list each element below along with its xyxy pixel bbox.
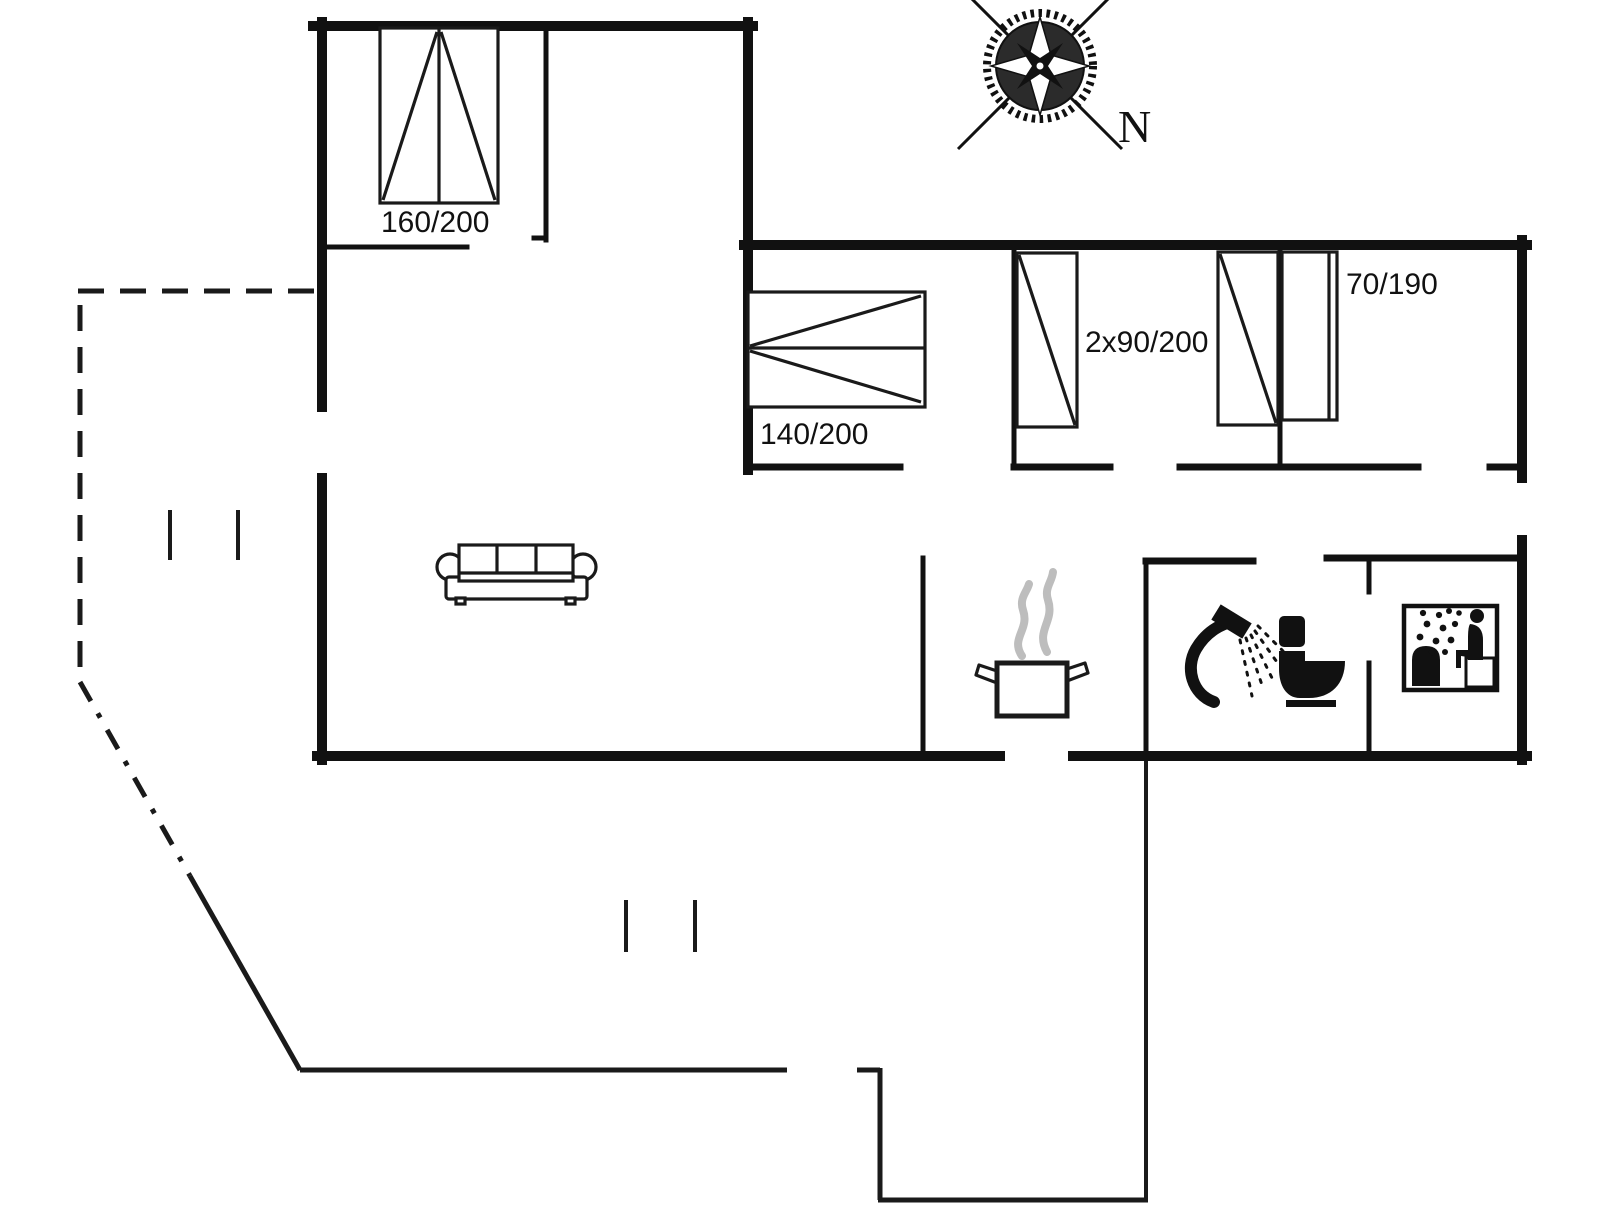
bed-160-label: 160/200 <box>381 206 489 239</box>
steam-wisp-2 <box>1043 572 1053 652</box>
steam-wisp-1 <box>1018 584 1029 656</box>
terrace-outline <box>78 291 1148 1200</box>
double-bed-140-icon <box>748 292 925 407</box>
narrow-bed-icon <box>1282 252 1337 420</box>
bed-2x90-label: 2x90/200 <box>1085 326 1208 359</box>
single-bed-icon-left <box>1017 253 1077 427</box>
sauna-bench <box>1466 658 1494 687</box>
sofa-icon <box>437 545 596 604</box>
sauna-bucket <box>1412 646 1440 686</box>
single-bed-icon-right <box>1218 252 1278 425</box>
bed-70-label: 70/190 <box>1346 268 1438 301</box>
cooking-pot-steam-icon <box>976 572 1088 716</box>
compass-rose-icon <box>958 0 1122 149</box>
shower-head-icon <box>1191 612 1283 702</box>
double-bed-icon <box>380 28 498 203</box>
terrace-solid-diagonal <box>190 876 300 1070</box>
bed-140-label: 140/200 <box>760 418 868 451</box>
terrace-dashdot-diagonal <box>80 682 190 876</box>
compass-north-label: N <box>1118 101 1151 152</box>
floor-plan: N <box>0 0 1606 1205</box>
sauna-person-icon <box>1404 606 1497 690</box>
toilet-icon <box>1279 616 1345 707</box>
